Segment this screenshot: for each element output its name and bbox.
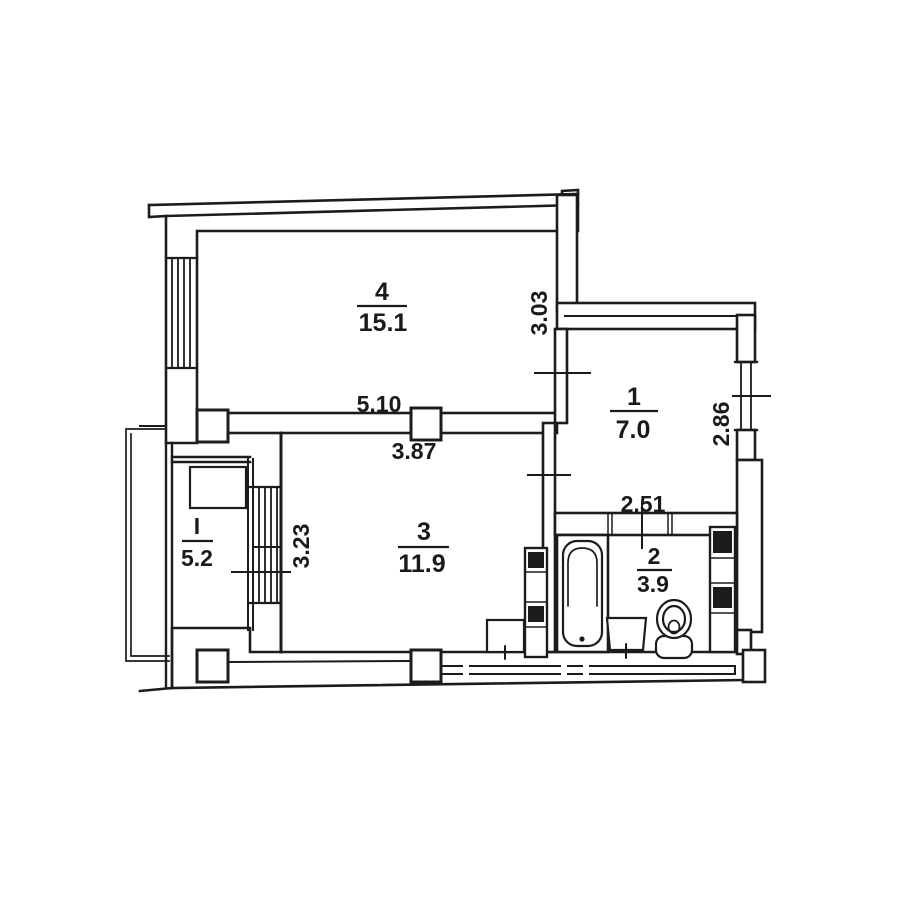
room1-right-wall-mid	[737, 430, 755, 460]
balcony-number: I	[194, 513, 200, 539]
room-3-number: 3	[417, 518, 431, 546]
room1-right-wall-upper	[737, 315, 755, 362]
dim-room3-left-height: 3.23	[288, 524, 314, 569]
bottom-wall-inner-line	[228, 661, 411, 662]
toilet	[656, 600, 692, 658]
ventilation-shaft-right	[710, 527, 735, 652]
room-4-number: 4	[375, 278, 389, 306]
floor-plan: 4 15.1 1 7.0 3 11.9 2 3.9 I 5.2 5.10 3.8…	[0, 0, 907, 914]
bathtub-drain	[579, 636, 584, 641]
dim-room4-width: 5.10	[357, 391, 402, 417]
pillar	[411, 408, 441, 440]
paper-background	[0, 0, 907, 914]
room-2-area: 3.9	[637, 571, 669, 597]
room-3-area: 11.9	[398, 550, 445, 578]
room-1-area: 7.0	[616, 416, 651, 444]
pillar	[197, 410, 228, 442]
balcony-sill-box	[190, 467, 246, 508]
floor-plan-svg: 4 15.1 1 7.0 3 11.9 2 3.9 I 5.2 5.10 3.8…	[0, 0, 907, 914]
room-2-number: 2	[648, 543, 661, 569]
room1-left-wall	[555, 329, 567, 423]
dim-bathroom-width: 2.51	[621, 491, 666, 517]
bathtub	[557, 535, 608, 652]
room-4-area: 15.1	[359, 309, 408, 337]
room-1-number: 1	[627, 383, 641, 411]
pillar	[411, 650, 441, 682]
right-wall-lower	[737, 460, 762, 632]
dim-room1-right-height: 2.86	[708, 402, 734, 447]
dim-room4-right-height: 3.03	[526, 291, 552, 336]
balcony-area: 5.2	[181, 545, 213, 571]
bottom-right-corner	[743, 650, 765, 682]
ventilation-shaft-left	[525, 548, 547, 657]
dim-room3-width: 3.87	[392, 438, 437, 464]
room4-right-wall	[557, 195, 577, 312]
pillar	[197, 650, 228, 682]
